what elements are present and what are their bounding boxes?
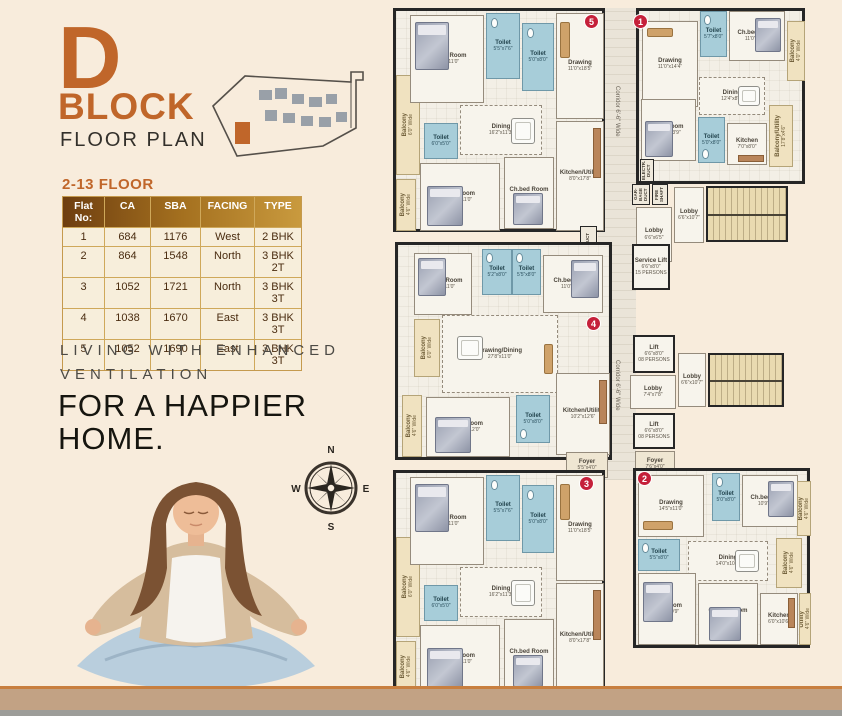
balcony: Balcony4'6" Wide [776, 538, 802, 588]
sba-value: 1548 [151, 247, 201, 277]
sofa-icon [643, 521, 673, 530]
tagline-line1: LIVING WITH ENHANCED [60, 342, 340, 359]
childrens-bedroom: Ch.bed Room10'9"x12'0" [504, 157, 554, 229]
bed-icon [415, 484, 449, 532]
sba-value: 1721 [151, 278, 201, 308]
tagline-line2: VENTILATION [60, 366, 212, 383]
table-row: 1 684 1176 West 2 BHK [63, 227, 301, 246]
childrens-bedroom: Ch.bed Room10'9"x12'0" [504, 619, 554, 691]
floor-range-heading: 2-13 FLOOR [62, 176, 154, 193]
flat-3-badge: 3 [579, 476, 594, 491]
lobby: Lobby6'6"x10'7" [674, 187, 704, 243]
toilet: Toilet5'0"x8'0" [712, 473, 740, 521]
unit-5-plan: Balcony6'0" Wide Ch.bed Room10'6"x11'0" … [393, 8, 605, 232]
wc-icon [491, 480, 498, 490]
kitchen-counter-icon [593, 590, 601, 640]
wc-icon [516, 253, 523, 263]
toilet: Toilet6'0"x5'0" [424, 123, 458, 159]
flat-no: 3 [63, 278, 105, 308]
bed-icon [571, 260, 599, 298]
sofa-icon [560, 22, 570, 58]
sofa-icon [544, 344, 553, 374]
flat-4-badge: 4 [586, 316, 601, 331]
toilet: Toilet5'5"x7'6" [486, 13, 520, 79]
col-sba: SBA [151, 197, 201, 227]
ca-value: 1052 [105, 278, 151, 308]
type-value: 2 BHK [255, 228, 301, 246]
drawing-room: Drawing11'0"x18'5" [556, 13, 604, 119]
wc-icon [527, 28, 534, 38]
staircase [706, 186, 788, 242]
sofa-icon [560, 484, 570, 520]
wc-icon [486, 253, 493, 263]
flat-1-badge: 1 [633, 14, 648, 29]
bed-icon [768, 481, 794, 517]
kitchen-counter-icon [593, 128, 601, 178]
drawing-room: Drawing11'0"x18'5" [556, 475, 604, 581]
master-bedroom: Bed Room14'0"x11'0" [420, 625, 500, 693]
toilet: Toilet5'0"x8'0" [698, 117, 725, 163]
wc-icon [491, 18, 498, 28]
balcony: Balcony6'0" Wide [414, 319, 440, 377]
kitchen: Kitchen/Utility8'0"x17'8" [556, 121, 604, 231]
drawing-room: Drawing11'0"x14'4" [642, 21, 698, 107]
kitchen: Kitchen/Utility10'2"x12'6" [556, 373, 610, 455]
facing-value: North [201, 247, 255, 277]
lobby: Lobby6'6"x10'7" [678, 353, 706, 407]
balcony-utility: Balcony/Utility17'8"x4'6" [769, 105, 793, 167]
col-facing: FACING [201, 197, 255, 227]
unit-2-plan: Drawing14'5"x11'0" Toilet5'0"x8'0" Ch.be… [633, 468, 810, 648]
balcony: Balcony4'0" Wide [787, 21, 805, 81]
tagline-line3: FOR A HAPPIER [58, 388, 307, 424]
flat-no: 4 [63, 309, 105, 339]
toilet: Toilet5'0"x8'0" [522, 485, 554, 553]
childrens-bedroom: Ch.bed Room11'0"x10'6" [729, 11, 785, 61]
childrens-bedroom: Ch.bed Room12'0"x11'0" [414, 253, 472, 315]
footer-bar [0, 689, 842, 710]
fire-shaft: FIRE SHAFT [652, 184, 668, 205]
page-title: FLOOR PLAN [60, 129, 207, 152]
lift: Lift 6'6"x8'0" 08 PERSONS [633, 335, 675, 373]
brochure-page: D BLOCK FLOOR PLAN 2-13 FLOOR Flat No: C… [0, 0, 842, 716]
dining-table-icon [457, 336, 483, 360]
kitchen-counter-icon [599, 380, 607, 424]
dining-table-icon [511, 580, 535, 606]
toilet: Toilet5'7"x8'0" [700, 11, 727, 57]
toilet: Toilet5'5"x8'0" [512, 249, 541, 295]
sofa-icon [647, 28, 673, 37]
dining-table-icon [738, 86, 760, 106]
bed-icon [755, 18, 781, 52]
toilet: Toilet5'5"x7'6" [486, 475, 520, 541]
bed-icon [643, 582, 673, 622]
dining-room: Dining16'2"x11'3" [460, 105, 542, 155]
dining-room: Dining14'0"x10'0" [688, 541, 768, 581]
kitchen: Kitchen6'0"x10'6" [760, 593, 798, 645]
childrens-bedroom: Ch.bed Room10'6"x11'0" [410, 477, 484, 565]
bed-icon [435, 417, 471, 453]
table-header-row: Flat No: CA SBA FACING TYPE [63, 197, 301, 227]
unit-3-plan: Balcony6'0" Wide Ch.bed Room10'6"x11'0" … [393, 470, 605, 692]
bed-icon [645, 121, 673, 157]
dining-room: Dining12'4"x8'0" [699, 77, 765, 115]
flat-no: 2 [63, 247, 105, 277]
ca-value: 864 [105, 247, 151, 277]
bed-icon [427, 648, 463, 688]
wc-icon [527, 490, 534, 500]
kitchen: Kitchen7'0"x8'0" [727, 123, 767, 165]
balcony: Balcony4'6" Wide [396, 179, 416, 231]
facing-value: East [201, 309, 255, 339]
unit-4-plan: Ch.bed Room12'0"x11'0" Toilet5'2"x8'0" T… [395, 242, 612, 460]
service-lift: Service Lift 6'6"x8'0" 15 PERSONS [632, 244, 670, 290]
ca-value: 1038 [105, 309, 151, 339]
flat-2-badge: 2 [637, 471, 652, 486]
toilet: Toilet5'2"x8'0" [482, 249, 512, 295]
type-value: 3 BHK 3T [255, 309, 301, 339]
childrens-bedroom: Ch.bed Room11'0"x11'0" [543, 255, 603, 313]
table-row: 4 1038 1670 East 3 BHK 3T [63, 308, 301, 339]
bed-icon [709, 607, 741, 641]
childrens-bedroom: Ch.bed Room10'6"x11'0" [410, 15, 484, 103]
bed-icon [513, 655, 543, 687]
dining-room: Dining16'2"x11'3" [460, 567, 542, 617]
table-row: 2 864 1548 North 3 BHK 2T [63, 246, 301, 277]
dining-table-icon [511, 118, 535, 144]
meditating-woman-image [45, 450, 347, 692]
garbage-duct: GAR-BAGE DUCT [632, 184, 650, 205]
ca-value: 684 [105, 228, 151, 246]
toilet: Toilet5'5"x8'0" [638, 539, 680, 571]
table-row: 3 1052 1721 North 3 BHK 3T [63, 277, 301, 308]
wc-icon [716, 477, 723, 487]
sba-value: 1176 [151, 228, 201, 246]
dining-table-icon [735, 550, 759, 572]
toilet: Toilet5'0"x8'0" [516, 395, 550, 443]
toilet: Toilet5'0"x8'0" [522, 23, 554, 91]
childrens-bedroom: Ch.bed Room10'9"x11'0" [742, 475, 798, 527]
flat-no: 1 [63, 228, 105, 246]
master-bedroom: Bed Room11'6"x10'9" [638, 573, 696, 645]
balcony: Balcony4'6" Wide [797, 481, 811, 536]
col-type: TYPE [255, 197, 301, 227]
master-bedroom: Bed Room14'0"x11'0" [420, 163, 500, 231]
site-key-plan [205, 64, 387, 162]
type-value: 3 BHK 2T [255, 247, 301, 277]
flat-5-badge: 5 [584, 14, 599, 29]
unit-1-plan: Drawing11'0"x14'4" Toilet5'7"x8'0" Ch.be… [636, 8, 805, 184]
wc-icon [704, 15, 711, 25]
utility: Utility4'6" Wide [799, 593, 811, 645]
toilet: Toilet6'0"x5'0" [424, 585, 458, 621]
staircase [708, 353, 784, 407]
balcony: Balcony4'6" Wide [402, 395, 422, 457]
corridor-label: Corridor 6'-6" Wide [614, 86, 620, 137]
kitchen-counter-icon [738, 155, 764, 162]
bed-icon [415, 22, 449, 70]
corridor-label: Corridor 6'-6" Wide [614, 360, 620, 411]
wc-icon [642, 543, 649, 553]
electrical-duct: ELECTR. DUCT [640, 159, 654, 182]
lift: Lift 6'6"x8'0" 08 PERSONS [633, 413, 675, 449]
master-bedroom: Bed Room14'0"x12'0" [426, 397, 510, 457]
kitchen: Kitchen/Utility8'0"x17'8" [556, 583, 604, 693]
highlighted-d-block [235, 122, 250, 144]
lobby: Lobby7'4"x7'8" [630, 375, 676, 409]
bed-icon [513, 193, 543, 225]
col-flat-no: Flat No: [63, 197, 105, 227]
wc-icon [520, 429, 527, 439]
kitchen-counter-icon [788, 598, 795, 628]
block-title: BLOCK [58, 86, 195, 128]
master-bedroom: Bed Room11'2"x13'9" [641, 99, 696, 161]
childrens-bedroom: Ch.bed Room10'0"x13'2" [698, 583, 758, 645]
wc-icon [702, 149, 709, 159]
sba-value: 1670 [151, 309, 201, 339]
compass-east-label: E [363, 484, 370, 495]
bed-icon [418, 258, 446, 296]
type-value: 3 BHK 3T [255, 278, 301, 308]
drawing-dining-room: Drawing/Dining27'8"x11'0" [442, 315, 558, 393]
facing-value: North [201, 278, 255, 308]
col-ca: CA [105, 197, 151, 227]
bed-icon [427, 186, 463, 226]
facing-value: West [201, 228, 255, 246]
footer-edge [0, 710, 842, 716]
